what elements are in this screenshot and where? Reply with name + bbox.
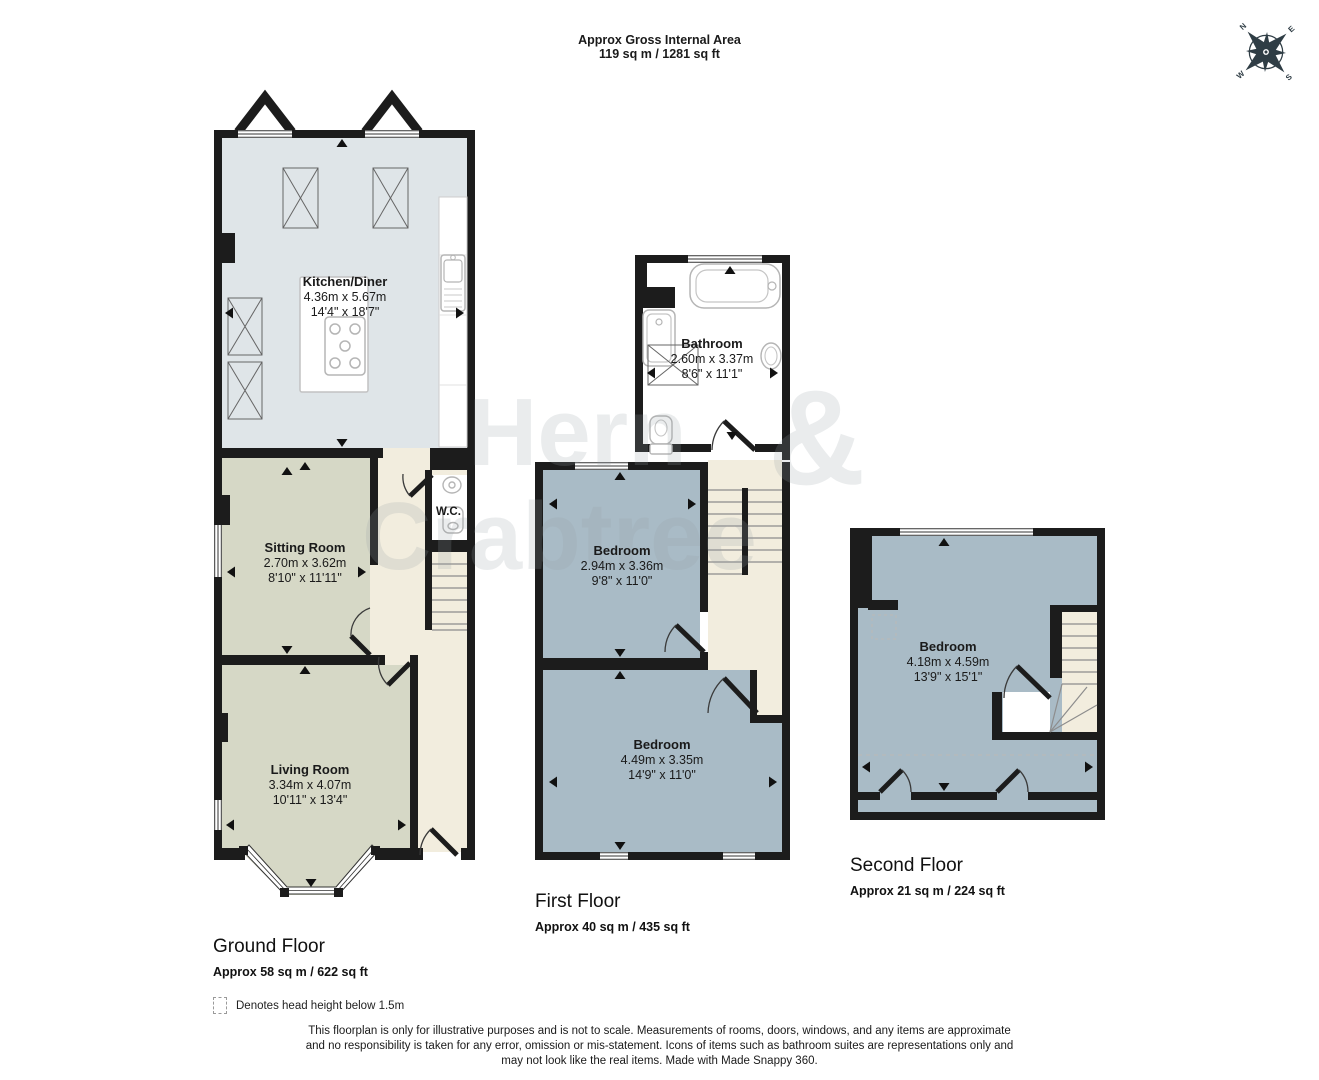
disclaimer-line1: This floorplan is only for illustrative … (0, 1024, 1319, 1039)
disclaimer: This floorplan is only for illustrative … (0, 1024, 1319, 1069)
compass-rose: N E S W (1226, 12, 1306, 92)
legend-text: Denotes head height below 1.5m (236, 1000, 404, 1012)
label-wc: W.C. (436, 506, 461, 518)
kitchen-counter (439, 197, 467, 447)
head-height-legend-icon (213, 997, 227, 1014)
caption-second-floor: Second Floor Approx 21 sq m / 224 sq ft (850, 855, 1005, 898)
sink-icon (441, 255, 465, 311)
disclaimer-line2: and no responsibility is taken for any e… (0, 1039, 1319, 1054)
compass-s: S (1284, 72, 1294, 82)
compass-e: E (1286, 24, 1296, 34)
first-floor-svg (520, 240, 800, 870)
compass-n: N (1238, 21, 1248, 32)
page-title: Approx Gross Internal Area 119 sq m / 12… (0, 33, 1319, 61)
dormer-windows (238, 97, 419, 132)
caption-ground-floor: Ground Floor Approx 58 sq m / 622 sq ft (213, 936, 368, 979)
legend: Denotes head height below 1.5m (213, 997, 404, 1014)
ground-floor-plan (205, 85, 485, 915)
title-line2: 119 sq m / 1281 sq ft (0, 47, 1319, 61)
compass-icon: N E S W (1226, 12, 1306, 92)
kitchen-island (300, 277, 368, 392)
ground-floor-svg (205, 85, 485, 915)
second-floor-svg (840, 515, 1120, 825)
second-floor-window (900, 528, 1033, 536)
second-floor-plan (840, 515, 1120, 825)
compass-w: W (1235, 69, 1247, 81)
caption-first-floor: First Floor Approx 40 sq m / 435 sq ft (535, 891, 690, 934)
disclaimer-line3: may not look like the real items. Made w… (0, 1054, 1319, 1069)
title-line1: Approx Gross Internal Area (0, 33, 1319, 47)
first-floor-plan (520, 240, 800, 870)
